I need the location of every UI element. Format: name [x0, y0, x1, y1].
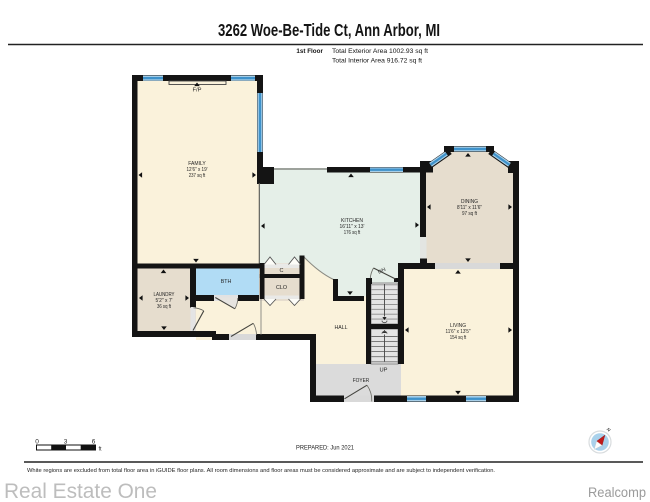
svg-text:6: 6 — [92, 439, 96, 446]
svg-text:FOYER: FOYER — [353, 378, 370, 384]
svg-text:HALL: HALL — [335, 325, 348, 331]
svg-text:0: 0 — [35, 439, 39, 446]
svg-text:ft: ft — [99, 447, 103, 453]
svg-text:PREPARED: Jun 2021: PREPARED: Jun 2021 — [296, 446, 355, 452]
svg-text:Total Interior Area 916.72 sq: Total Interior Area 916.72 sq ft — [332, 58, 422, 65]
svg-text:154 sq ft: 154 sq ft — [450, 335, 467, 341]
svg-text:UP: UP — [380, 368, 389, 374]
svg-text:97 sq ft: 97 sq ft — [462, 211, 478, 217]
svg-text:176 sq ft: 176 sq ft — [344, 230, 361, 236]
svg-text:C: C — [280, 268, 284, 274]
svg-text:Realcomp: Realcomp — [588, 485, 646, 500]
svg-text:F/P: F/P — [193, 88, 203, 94]
svg-text:237 sq ft: 237 sq ft — [189, 173, 206, 179]
svg-text:BTH: BTH — [221, 279, 232, 285]
svg-text:CLO: CLO — [276, 285, 287, 291]
svg-text:Real Estate One: Real Estate One — [4, 480, 157, 502]
svg-text:3: 3 — [64, 439, 68, 446]
svg-text:White regions are excluded fro: White regions are excluded from total fl… — [27, 468, 495, 474]
svg-text:3262 Woe-Be-Tide Ct, Ann Arbor: 3262 Woe-Be-Tide Ct, Ann Arbor, MI — [218, 20, 440, 40]
svg-text:Total Exterior Area 1002.93 sq: Total Exterior Area 1002.93 sq ft — [332, 48, 428, 55]
svg-text:1st Floor: 1st Floor — [296, 48, 323, 55]
svg-text:36 sq ft: 36 sq ft — [157, 304, 172, 310]
